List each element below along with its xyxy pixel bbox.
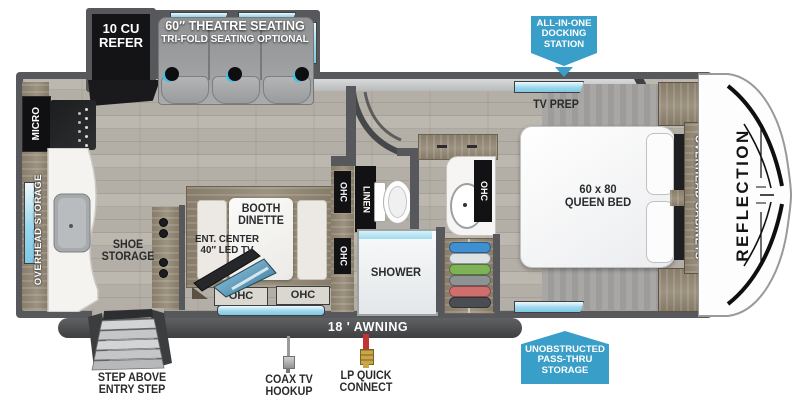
overhead-cabinet-box: OHC: [276, 286, 330, 305]
lp-tip-icon: [363, 364, 369, 368]
shoe-storage-label: SHOE STORAGE: [98, 239, 158, 263]
divider-wall: [179, 205, 185, 310]
coax-cable-icon: [287, 336, 290, 358]
booth-dinette-label: BOOTH DINETTE: [228, 203, 293, 227]
pillow: [646, 133, 674, 195]
shoe-pair-icon: [159, 256, 168, 280]
ohc-label: OHC: [291, 290, 315, 302]
micro-label: MICRO: [31, 107, 42, 140]
lp-label-line1: LP QUICK: [338, 370, 394, 382]
refer-label-line2: REFER: [88, 36, 154, 50]
coax-stem-icon: [286, 368, 290, 373]
ent-center-label: ENT. CENTER 40″ LED TV: [186, 234, 268, 256]
coax-label-line2: HOOKUP: [260, 386, 318, 398]
docking-line3: STATION: [531, 40, 597, 50]
shower: SHOWER: [357, 229, 438, 316]
theatre-label-line2: TRI-FOLD SEATING OPTIONAL: [154, 34, 316, 45]
hanging-clothes: [449, 297, 491, 308]
hanging-clothes: [449, 253, 491, 264]
cupholder: [295, 67, 309, 81]
hanging-clothes: [449, 264, 491, 275]
step-label-line2: ENTRY STEP: [87, 384, 176, 396]
wardrobe: [444, 238, 495, 314]
dinette-window: [217, 305, 325, 316]
step-label: STEP ABOVE ENTRY STEP: [87, 372, 176, 396]
wardrobe-wall: [493, 234, 500, 312]
microwave: MICRO: [22, 96, 51, 152]
burner-dots: [85, 108, 88, 111]
kitchen-counter: [44, 148, 102, 312]
entry-steps: [86, 305, 176, 371]
docking-station-callout: ALL-IN-ONE DOCKING STATION: [531, 16, 597, 66]
bench-cushion: [297, 200, 327, 280]
theatre-label-line1: 60″ THEATRE SEATING: [154, 20, 316, 34]
pass-thru-callout: UNOBSTRUCTED PASS-THRU STORAGE: [521, 331, 609, 384]
bedroom-window-bottom: [514, 301, 584, 313]
queen-bed-label: 60 x 80 QUEEN BED: [561, 183, 635, 208]
bedroom-window-top: [514, 81, 584, 93]
tv-prep-label: TV PREP: [526, 99, 586, 111]
booth-label-line1: BOOTH: [228, 203, 293, 215]
ohc-label: OHC: [338, 246, 348, 266]
vanity-ohc-cabinet: OHC: [474, 160, 492, 222]
bath-ohc-cabinet: OHC: [334, 171, 351, 213]
cupholder: [228, 67, 242, 81]
rv-floorplan: 10 CU REFER 60″ THEATRE SEATING TRI-FOLD…: [0, 0, 800, 400]
shoe-label-line1: SHOE: [98, 239, 158, 251]
shoe-pair-icon: [159, 216, 168, 240]
coax-label-line1: COAX TV: [260, 374, 318, 386]
shoe-label-line2: STORAGE: [98, 251, 158, 263]
lp-valve-icon: [363, 334, 369, 349]
bath-wall: [331, 156, 356, 166]
awning-label: 18 ' AWNING: [308, 321, 428, 335]
front-cap: REFLECTION: [698, 66, 798, 324]
hanging-clothes: [449, 242, 491, 253]
ohc-label: OHC: [338, 182, 348, 202]
reflection-logo: REFLECTION: [733, 128, 752, 262]
lp-label-line2: CONNECT: [338, 382, 394, 394]
bath-wall: [410, 148, 419, 234]
bath-door: [349, 90, 403, 158]
stove: [50, 100, 96, 150]
bath-ohc-cabinet: OHC: [334, 238, 351, 274]
refer-label: 10 CU REFER: [88, 22, 154, 51]
linen-label: LINEN: [361, 186, 371, 213]
toilet: [374, 178, 410, 224]
lp-label: LP QUICK CONNECT: [338, 370, 394, 394]
hanging-clothes: [449, 275, 491, 286]
coax-label: COAX TV HOOKUP: [260, 374, 318, 398]
refer-label-line1: 10 CU: [88, 22, 154, 36]
bed-label-line2: QUEEN BED: [561, 196, 635, 209]
linen-cabinet: LINEN: [355, 166, 376, 232]
bed-label-line1: 60 x 80: [561, 183, 635, 196]
ent-label-line2: 40″ LED TV: [186, 245, 268, 256]
passthru-line3: STORAGE: [521, 366, 609, 376]
pillow: [646, 201, 674, 263]
theatre-label: 60″ THEATRE SEATING TRI-FOLD SEATING OPT…: [154, 20, 316, 45]
cupholder: [165, 67, 179, 81]
ohc-label: OHC: [478, 181, 488, 201]
lp-connector-icon: [360, 349, 374, 365]
hanging-clothes: [449, 286, 491, 297]
booth-label-line2: DINETTE: [228, 215, 293, 227]
shower-label: SHOWER: [370, 266, 420, 279]
bath-wall: [346, 86, 356, 158]
step-label-line1: STEP ABOVE: [87, 372, 176, 384]
